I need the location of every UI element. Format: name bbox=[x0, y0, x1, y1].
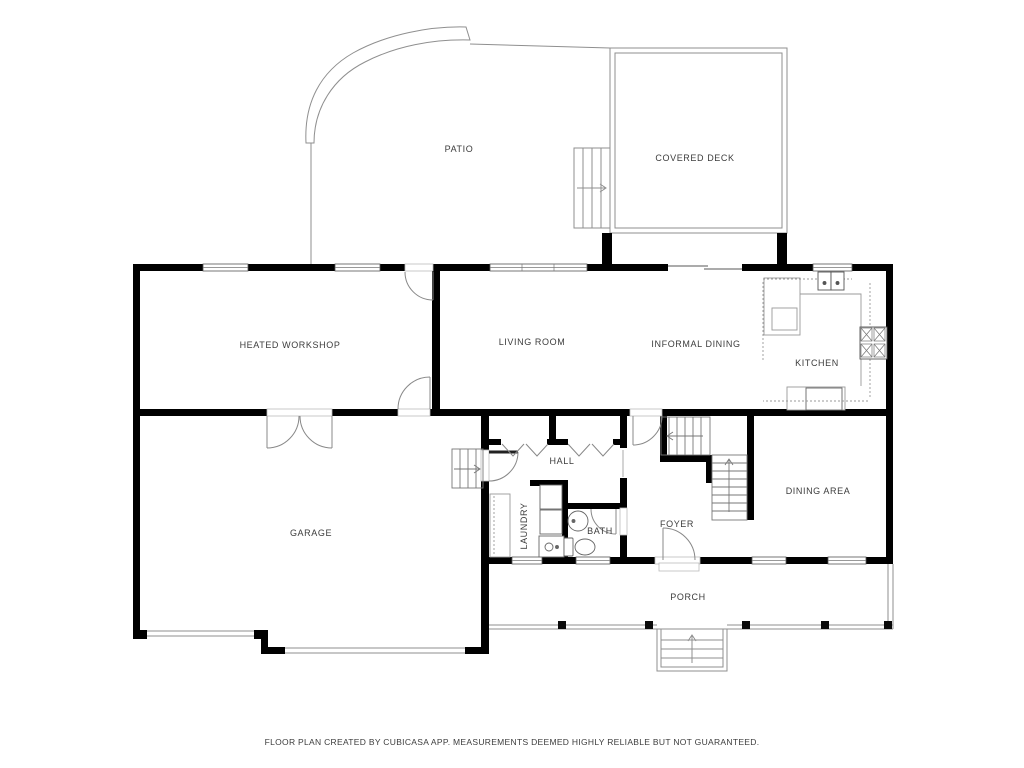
room-label-hall: HALL bbox=[550, 456, 575, 466]
washer-dryer bbox=[539, 485, 564, 557]
room-label-dining-area: DINING AREA bbox=[786, 486, 851, 496]
french-doors bbox=[267, 416, 332, 448]
room-label-kitchen: KITCHEN bbox=[795, 358, 839, 368]
kitchen-island bbox=[806, 388, 842, 410]
stove bbox=[860, 327, 887, 359]
laundry-counter bbox=[490, 494, 510, 557]
basement-stairs bbox=[452, 449, 483, 488]
front-door-threshold bbox=[659, 563, 699, 571]
porch-steps bbox=[657, 629, 727, 671]
patio-top-edge bbox=[470, 44, 610, 48]
room-label-laundry: LAUNDRY bbox=[519, 502, 529, 549]
floor-plan-page: PATIO COVERED DECK HEATED WORKSHOP LIVIN… bbox=[0, 0, 1024, 768]
deck-outer bbox=[610, 48, 787, 233]
room-label-heated-workshop: HEATED WORKSHOP bbox=[240, 340, 341, 350]
closet-bifold-doors bbox=[502, 444, 614, 456]
room-label-patio: PATIO bbox=[445, 144, 474, 154]
deck-inner bbox=[615, 53, 782, 228]
room-label-covered-deck: COVERED DECK bbox=[655, 153, 734, 163]
workshop-exterior-door bbox=[405, 272, 433, 300]
room-label-porch: PORCH bbox=[670, 592, 706, 602]
room-label-foyer: FOYER bbox=[660, 519, 694, 529]
room-label-garage: GARAGE bbox=[290, 528, 332, 538]
room-label-bath: BATH bbox=[587, 526, 613, 536]
garage-hall-door bbox=[489, 452, 518, 481]
kitchen-counter bbox=[763, 278, 870, 410]
floor-plan-drawing bbox=[0, 0, 1024, 768]
room-label-living-room: LIVING ROOM bbox=[499, 337, 566, 347]
room-label-informal-dining: INFORMAL DINING bbox=[651, 339, 740, 349]
toilet bbox=[564, 538, 595, 556]
workshop-garage-door bbox=[398, 377, 430, 409]
deck-stairs bbox=[574, 148, 610, 228]
front-door bbox=[663, 528, 695, 560]
patio-curved-wall bbox=[306, 27, 470, 143]
foyer-dining-door bbox=[633, 416, 662, 445]
sliding-door bbox=[668, 266, 742, 269]
footer-disclaimer: FLOOR PLAN CREATED BY CUBICASA APP. MEAS… bbox=[0, 737, 1024, 747]
garage-doors bbox=[147, 631, 465, 653]
main-stairs bbox=[661, 417, 747, 520]
kitchen-sink bbox=[818, 272, 844, 290]
bath-sink bbox=[568, 511, 588, 531]
